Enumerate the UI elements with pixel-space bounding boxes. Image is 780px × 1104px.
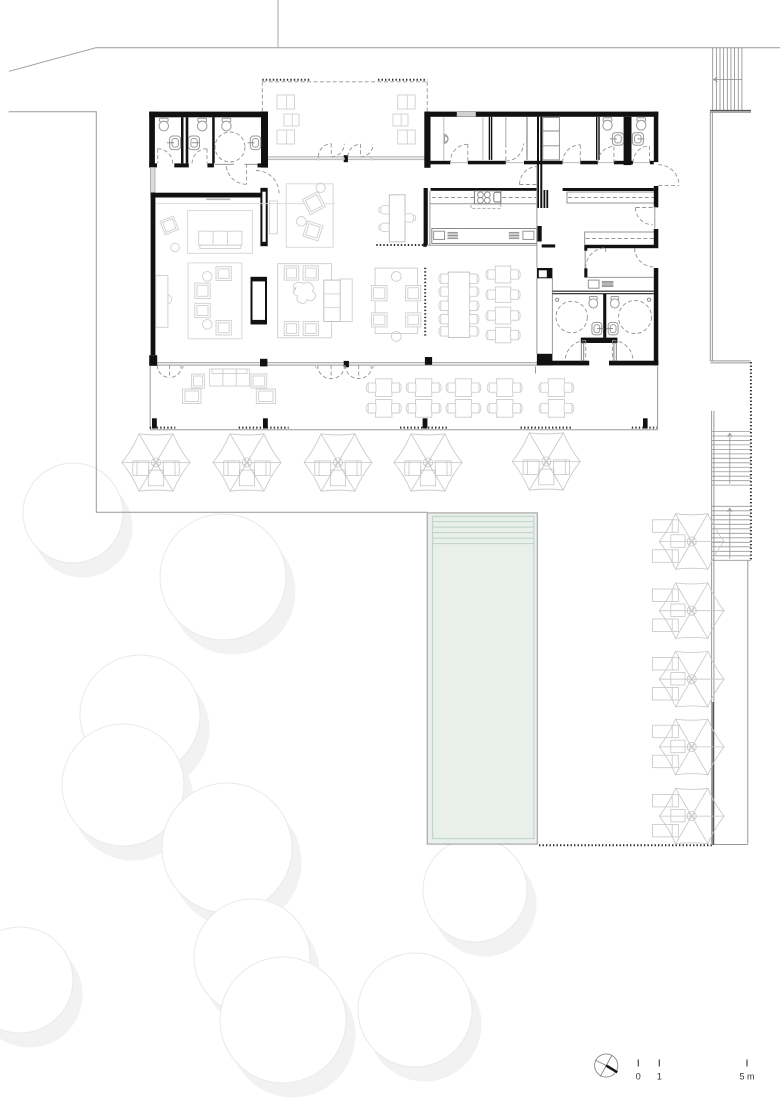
svg-text:5 m: 5 m — [739, 1072, 754, 1082]
svg-text:1: 1 — [657, 1072, 662, 1082]
svg-text:0: 0 — [636, 1072, 641, 1082]
